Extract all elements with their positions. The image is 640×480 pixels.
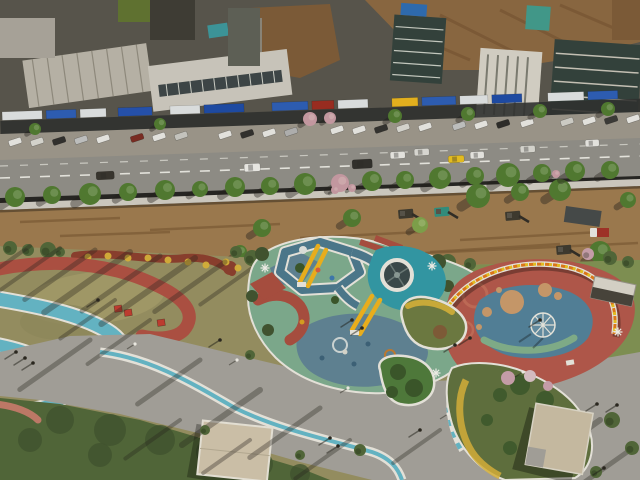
aerial-photo-stage [0, 0, 640, 480]
aerial-park-scene [0, 0, 640, 480]
photo-tint-overlay [0, 0, 640, 480]
